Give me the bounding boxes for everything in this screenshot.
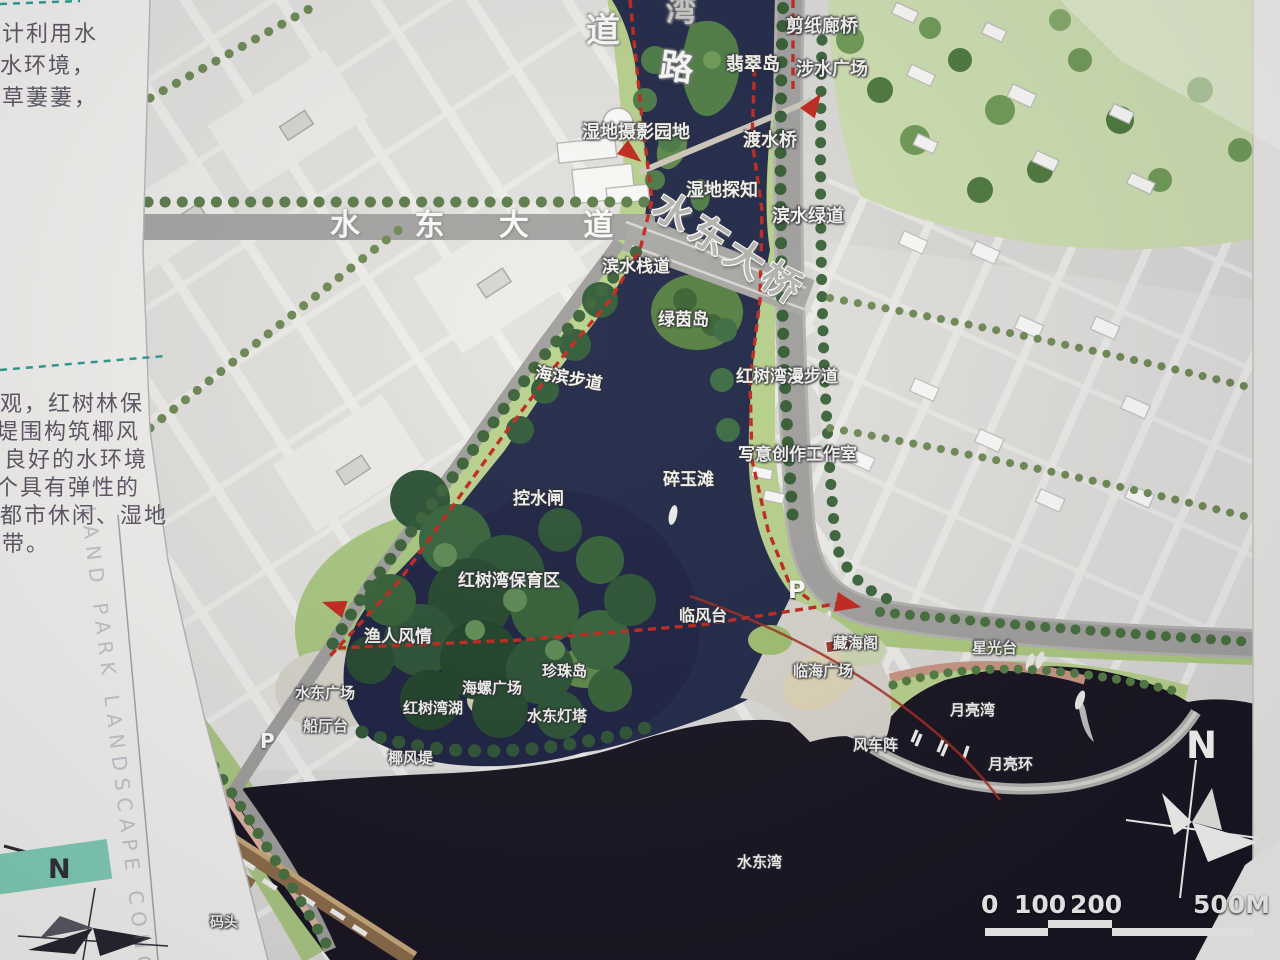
- scale-bar-segment: [985, 928, 1048, 936]
- panel-text-line: 计利用水: [2, 16, 98, 48]
- panel-text-line: 水环境，: [0, 48, 96, 80]
- map-photo: 道湾路剪纸廊桥翡翠岛涉水广场湿地摄影园地渡水桥湿地探知滨水绿道水 东 大 道水东…: [0, 0, 1280, 960]
- scale-bar-segment: [1048, 920, 1112, 928]
- scale-tick: 500M: [1193, 890, 1270, 919]
- panel-text-line: 芳草萋萋，: [0, 80, 98, 112]
- scale-tick: 200: [1070, 890, 1122, 919]
- map-artwork: [0, 0, 1280, 960]
- compass-north-label-left: N: [48, 854, 71, 885]
- scale-tick: 100: [1014, 890, 1066, 919]
- panel-text-line: 带。: [2, 526, 50, 558]
- scale-bar-segment: [1112, 928, 1255, 936]
- scale-tick: 0: [981, 890, 998, 919]
- compass-north-label-right: N: [1186, 724, 1217, 767]
